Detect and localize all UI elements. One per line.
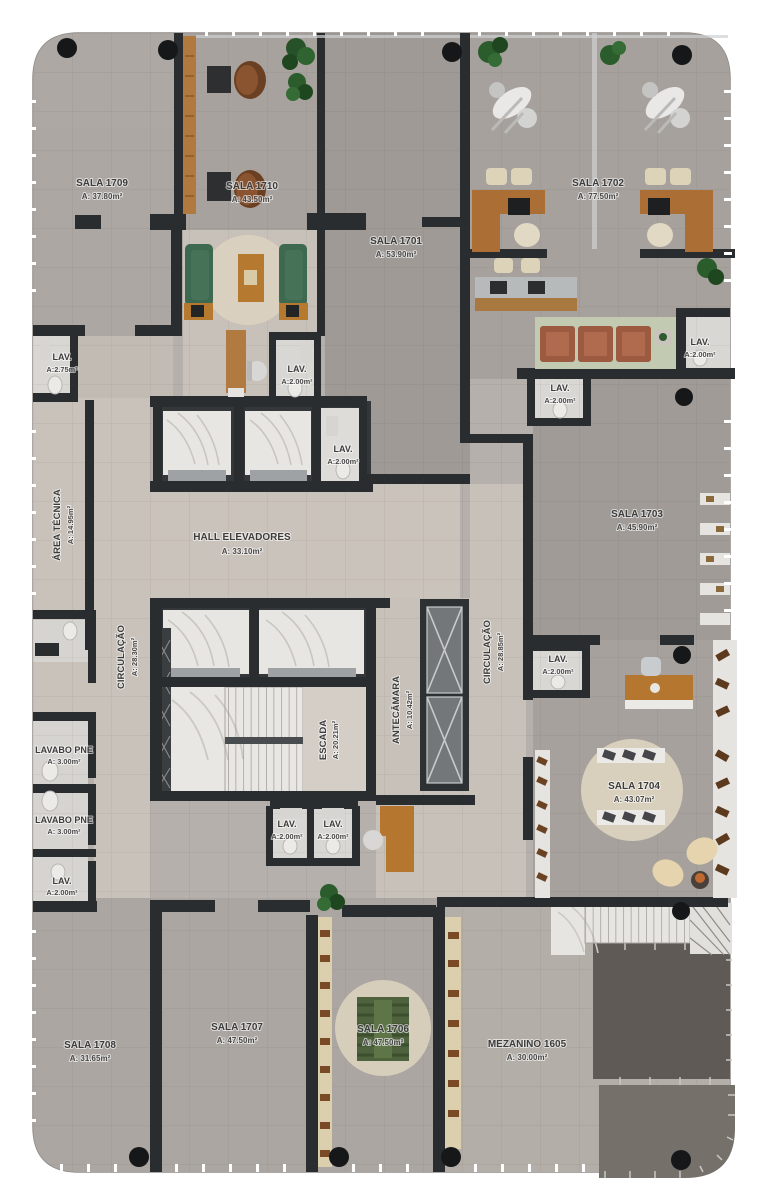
svg-text:LAV.: LAV.	[323, 819, 342, 829]
svg-text:A: 30.00m²: A: 30.00m²	[507, 1053, 548, 1062]
svg-text:MEZANINO 1605: MEZANINO 1605	[488, 1039, 567, 1050]
svg-text:LAV.: LAV.	[550, 383, 569, 393]
svg-text:A: 28.30m²: A: 28.30m²	[130, 637, 139, 676]
svg-text:A: 47.50m²: A: 47.50m²	[217, 1036, 258, 1045]
svg-text:A: 47.50m²: A: 47.50m²	[363, 1038, 404, 1047]
svg-text:SALA 1709: SALA 1709	[76, 178, 128, 189]
svg-text:CIRCULAÇÃO: CIRCULAÇÃO	[116, 625, 127, 689]
svg-text:A: 53.90m²: A: 53.90m²	[376, 250, 417, 259]
svg-text:A: 33.10m²: A: 33.10m²	[222, 547, 263, 556]
svg-text:A: 37.80m²: A: 37.80m²	[82, 192, 123, 201]
svg-text:A: 10.42m²: A: 10.42m²	[405, 690, 414, 729]
svg-text:SALA 1703: SALA 1703	[611, 509, 663, 520]
svg-text:A:2.00m²: A:2.00m²	[544, 396, 576, 405]
svg-text:SALA 1707: SALA 1707	[211, 1022, 263, 1033]
svg-text:CIRCULAÇÃO: CIRCULAÇÃO	[482, 620, 493, 684]
svg-text:A: 43.50m²: A: 43.50m²	[232, 195, 273, 204]
svg-text:A:2.75m²: A:2.75m²	[46, 365, 78, 374]
svg-text:LAVABO PNE: LAVABO PNE	[35, 815, 93, 825]
svg-text:A:2.00m²: A:2.00m²	[271, 832, 303, 841]
svg-text:LAVABO PNE: LAVABO PNE	[35, 745, 93, 755]
svg-text:ÁREA TÉCNICA: ÁREA TÉCNICA	[52, 489, 63, 561]
svg-text:A: 20.21m²: A: 20.21m²	[331, 720, 340, 759]
svg-text:A: 45.90m²: A: 45.90m²	[617, 523, 658, 532]
svg-text:ESCADA: ESCADA	[318, 720, 329, 760]
svg-text:SALA 1701: SALA 1701	[370, 236, 422, 247]
svg-text:A: 28.85m²: A: 28.85m²	[496, 632, 505, 671]
svg-text:SALA 1702: SALA 1702	[572, 178, 624, 189]
svg-text:A: 3.00m²: A: 3.00m²	[47, 757, 81, 766]
svg-text:A: 3.00m²: A: 3.00m²	[47, 827, 81, 836]
svg-text:A:2.00m²: A:2.00m²	[684, 350, 716, 359]
svg-text:A:2.00m²: A:2.00m²	[46, 888, 78, 897]
svg-text:A:2.00m²: A:2.00m²	[281, 377, 313, 386]
svg-text:A: 43.07m²: A: 43.07m²	[614, 795, 655, 804]
svg-text:SALA 1706: SALA 1706	[357, 1024, 409, 1035]
svg-text:LAV.: LAV.	[548, 654, 567, 664]
svg-text:A:2.00m²: A:2.00m²	[542, 667, 574, 676]
svg-text:LAV.: LAV.	[690, 337, 709, 347]
svg-text:A:2.00m²: A:2.00m²	[327, 457, 359, 466]
svg-text:SALA 1710: SALA 1710	[226, 181, 278, 192]
svg-text:A: 14.95m²: A: 14.95m²	[66, 505, 75, 544]
svg-text:HALL ELEVADORES: HALL ELEVADORES	[193, 532, 291, 543]
svg-text:LAV.: LAV.	[287, 364, 306, 374]
svg-text:LAV.: LAV.	[52, 352, 71, 362]
svg-text:ANTECÂMARA: ANTECÂMARA	[390, 676, 402, 744]
svg-text:SALA 1708: SALA 1708	[64, 1040, 116, 1051]
svg-text:A: 77.50m²: A: 77.50m²	[578, 192, 619, 201]
svg-text:LAV.: LAV.	[52, 876, 71, 886]
svg-text:LAV.: LAV.	[277, 819, 296, 829]
svg-text:LAV.: LAV.	[333, 444, 352, 454]
svg-text:SALA 1704: SALA 1704	[608, 781, 660, 792]
svg-text:A: 31.65m²: A: 31.65m²	[70, 1054, 111, 1063]
svg-text:A:2.00m²: A:2.00m²	[317, 832, 349, 841]
